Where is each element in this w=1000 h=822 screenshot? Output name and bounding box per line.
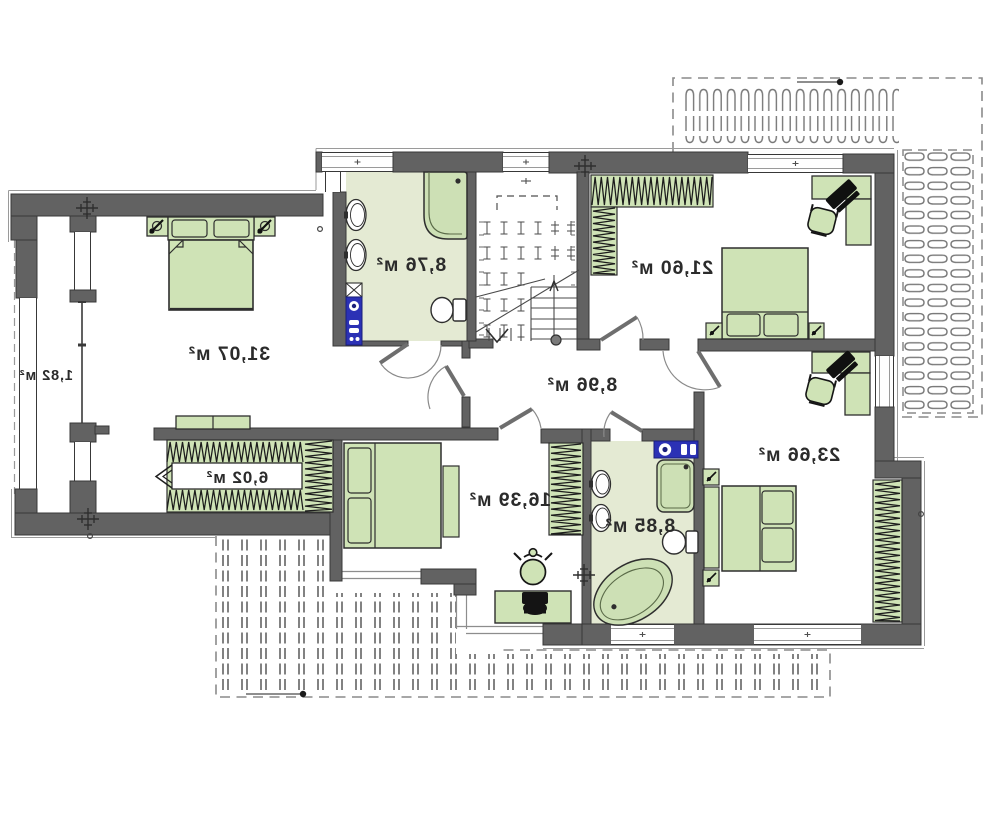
svg-text:31,07 м²: 31,07 м² <box>188 343 270 365</box>
svg-text:16,39 м²: 16,39 м² <box>469 489 551 511</box>
svg-text:6,02 м²: 6,02 м² <box>206 468 268 487</box>
svg-text:8,85 м²: 8,85 м² <box>605 515 676 537</box>
svg-text:23,66 м²: 23,66 м² <box>758 444 840 466</box>
svg-text:1,82 м²: 1,82 м² <box>19 368 73 384</box>
svg-text:8,76 м²: 8,76 м² <box>376 254 447 276</box>
svg-text:21,60 м²: 21,60 м² <box>631 257 713 279</box>
svg-text:8,96 м²: 8,96 м² <box>547 374 618 396</box>
